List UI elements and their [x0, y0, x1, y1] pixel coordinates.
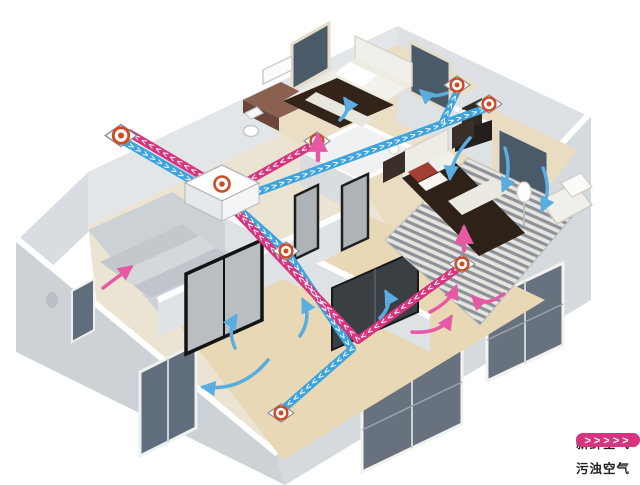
interior-door — [342, 174, 368, 250]
exterior-window — [72, 279, 94, 342]
legend-item-polluted-air: >>>>> 污浊空气 — [576, 458, 630, 477]
interior-door — [295, 185, 318, 259]
polluted-air-label: 污浊空气 — [576, 458, 630, 477]
house-cutaway-illustration: >>>>>>>>>>>>>>>>>>>>>>>>>>>>>>>>>>>>>>>>… — [0, 0, 640, 485]
polluted-air-pill: >>>>> — [576, 433, 640, 447]
unit-fan-icon — [219, 181, 225, 187]
legend: >>>>> 新鲜空气 >>>>> 污浊空气 — [576, 433, 630, 477]
ventilation-diagram: >>>>>>>>>>>>>>>>>>>>>>>>>>>>>>>>>>>>>>>>… — [0, 0, 640, 485]
polluted-air-pill-chevrons: >>>>> — [584, 435, 631, 447]
wall-detail — [46, 292, 58, 308]
